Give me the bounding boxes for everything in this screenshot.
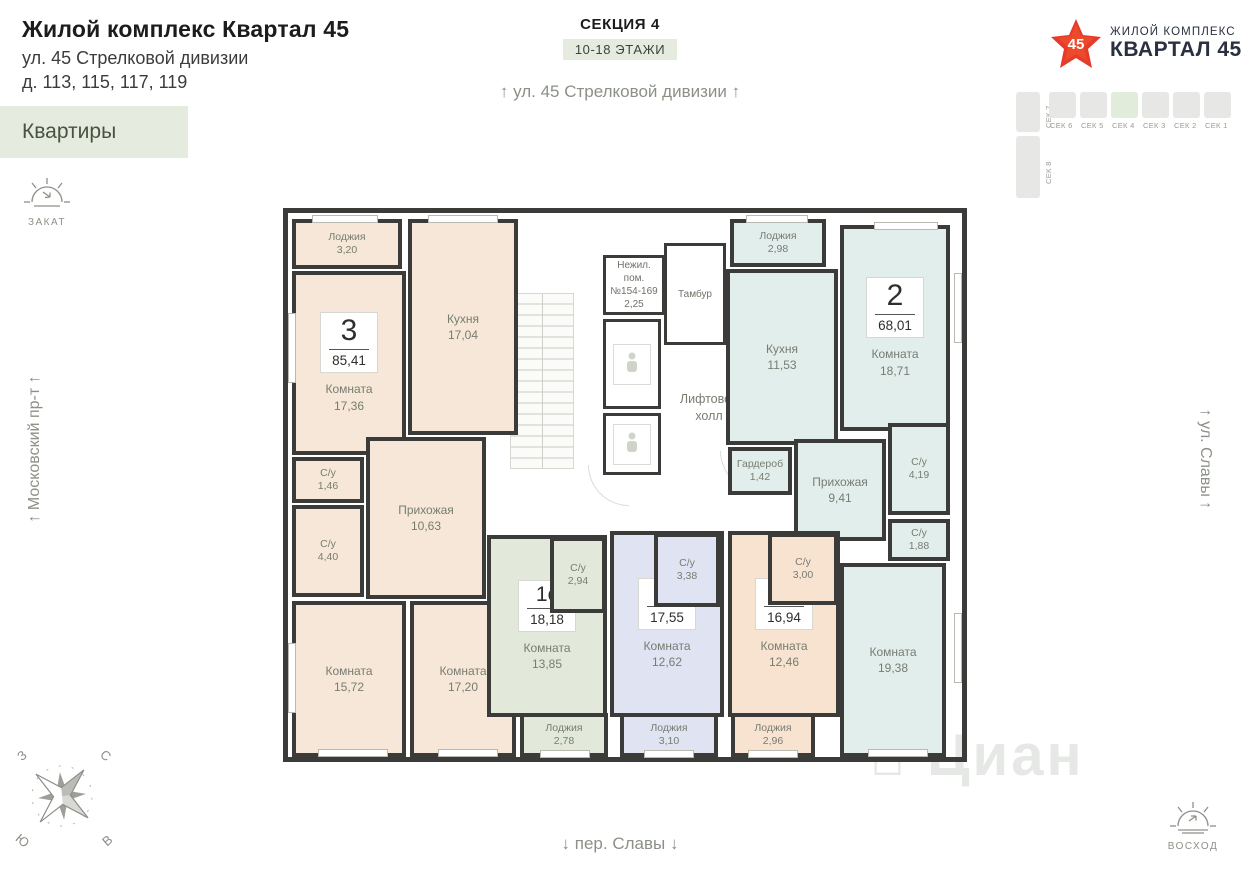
window [868, 749, 928, 757]
apt2-hall[interactable]: Прихожая9,41 [794, 439, 886, 541]
section-map-label-sek1: СЕК 1 [1205, 121, 1228, 130]
window [288, 313, 296, 383]
sunset-label: ЗАКАТ [12, 217, 82, 228]
section-map-block-sek3[interactable] [1142, 92, 1169, 118]
section-map-block-sek6[interactable] [1049, 92, 1076, 118]
apt3-room2[interactable]: Комната15,72 [292, 601, 406, 757]
apt2-su1[interactable]: С/у4,19 [888, 423, 950, 515]
window [318, 749, 388, 757]
apt3-badge[interactable]: 3 85,41 [320, 312, 378, 373]
apt3-su2[interactable]: С/у4,40 [292, 505, 364, 597]
sunrise-icon [1170, 800, 1216, 834]
logo-line1: ЖИЛОЙ КОМПЛЕКС [1110, 26, 1242, 38]
window [428, 215, 498, 223]
person-icon [624, 431, 640, 453]
section-map-label-sek8: СЕК 8 [1044, 161, 1053, 184]
logo-star-icon: 45 [1050, 18, 1102, 70]
compass-rose: З С Ю В [10, 744, 118, 856]
studio2-su[interactable]: С/у3,38 [654, 533, 720, 607]
section-name: СЕКЦИЯ 4 [460, 16, 780, 33]
window [954, 613, 962, 683]
sunrise-block: ВОСХОД [1158, 800, 1228, 852]
floor-plan: Лоджия3,20 Кухня17,04 3 85,41 Комната17,… [283, 208, 967, 762]
address-line-1: ул. 45 Стрелковой дивизии [22, 48, 248, 69]
section-info: СЕКЦИЯ 4 10-18 ЭТАЖИ [460, 16, 780, 60]
section-map-label-sek4: СЕК 4 [1112, 121, 1135, 130]
section-map-block-sek4-active[interactable] [1111, 92, 1138, 118]
studio1-su[interactable]: С/у2,94 [550, 537, 606, 613]
section-map-block-sek5[interactable] [1080, 92, 1107, 118]
person-icon [624, 351, 640, 373]
apartments-button[interactable]: Квартиры [0, 106, 188, 158]
apt3-room1[interactable]: 3 85,41 Комната17,36 [292, 271, 406, 455]
window [644, 750, 694, 758]
apt3-kitchen[interactable]: Кухня17,04 [408, 219, 518, 435]
window [312, 215, 378, 223]
street-label-left: ↑ Московский пр-т ↑ [26, 329, 44, 569]
section-map-block-sek8[interactable] [1016, 136, 1040, 198]
street-label-top: ↑ ул. 45 Стрелковой дивизии ↑ [430, 82, 810, 102]
address-line-2: д. 113, 115, 117, 119 [22, 72, 187, 93]
section-map-label-sek2: СЕК 2 [1174, 121, 1197, 130]
section-map-block-sek7[interactable] [1016, 92, 1040, 132]
floors-badge: 10-18 ЭТАЖИ [563, 39, 677, 60]
window [874, 222, 938, 230]
sunrise-label: ВОСХОД [1158, 841, 1228, 852]
studio3-su[interactable]: С/у3,00 [768, 533, 838, 605]
section-map-label-sek3: СЕК 3 [1143, 121, 1166, 130]
section-map-label-sek5: СЕК 5 [1081, 121, 1104, 130]
section-map-block-sek2[interactable] [1173, 92, 1200, 118]
apt3-su1[interactable]: С/у1,46 [292, 457, 364, 503]
section-map-block-sek1[interactable] [1204, 92, 1231, 118]
street-label-right: ↑ ул. Славы ↑ [1196, 359, 1214, 559]
apt2-room2[interactable]: Комната19,38 [840, 563, 946, 757]
apt3-hall[interactable]: Прихожая10,63 [366, 437, 486, 599]
apt2-kitchen[interactable]: Кухня11,53 [726, 269, 838, 445]
section-map: СЕК 7 СЕК 8 СЕК 6 СЕК 5 СЕК 4 СЕК 3 СЕК … [1016, 88, 1242, 206]
sunset-icon [24, 176, 70, 210]
non-residential-room: Нежил. пом. №154-169 2,25 [603, 255, 665, 315]
apt2-badge[interactable]: 2 68,01 [866, 277, 924, 338]
window [748, 750, 798, 758]
tambur-room: Тамбур [664, 243, 726, 345]
window [746, 215, 808, 223]
sunset-block: ЗАКАТ [12, 176, 82, 228]
apt2-lodzhia[interactable]: Лоджия2,98 [730, 219, 826, 267]
logo: 45 ЖИЛОЙ КОМПЛЕКС КВАРТАЛ 45 [1050, 18, 1242, 70]
street-label-bottom: ↓ пер. Славы ↓ [430, 834, 810, 854]
stairs [510, 293, 574, 469]
apt3-lodzhia[interactable]: Лоджия3,20 [292, 219, 402, 269]
window [438, 749, 498, 757]
logo-line2: КВАРТАЛ 45 [1110, 38, 1242, 62]
svg-text:45: 45 [1068, 36, 1085, 53]
page-title: Жилой комплекс Квартал 45 [22, 16, 349, 43]
apt2-room1[interactable]: 2 68,01 Комната18,71 [840, 225, 950, 431]
apt2-su2[interactable]: С/у1,88 [888, 519, 950, 561]
window [954, 273, 962, 343]
window [540, 750, 590, 758]
window [288, 643, 296, 713]
apt2-garderob[interactable]: Гардероб1,42 [728, 447, 792, 495]
section-map-label-sek6: СЕК 6 [1050, 121, 1073, 130]
